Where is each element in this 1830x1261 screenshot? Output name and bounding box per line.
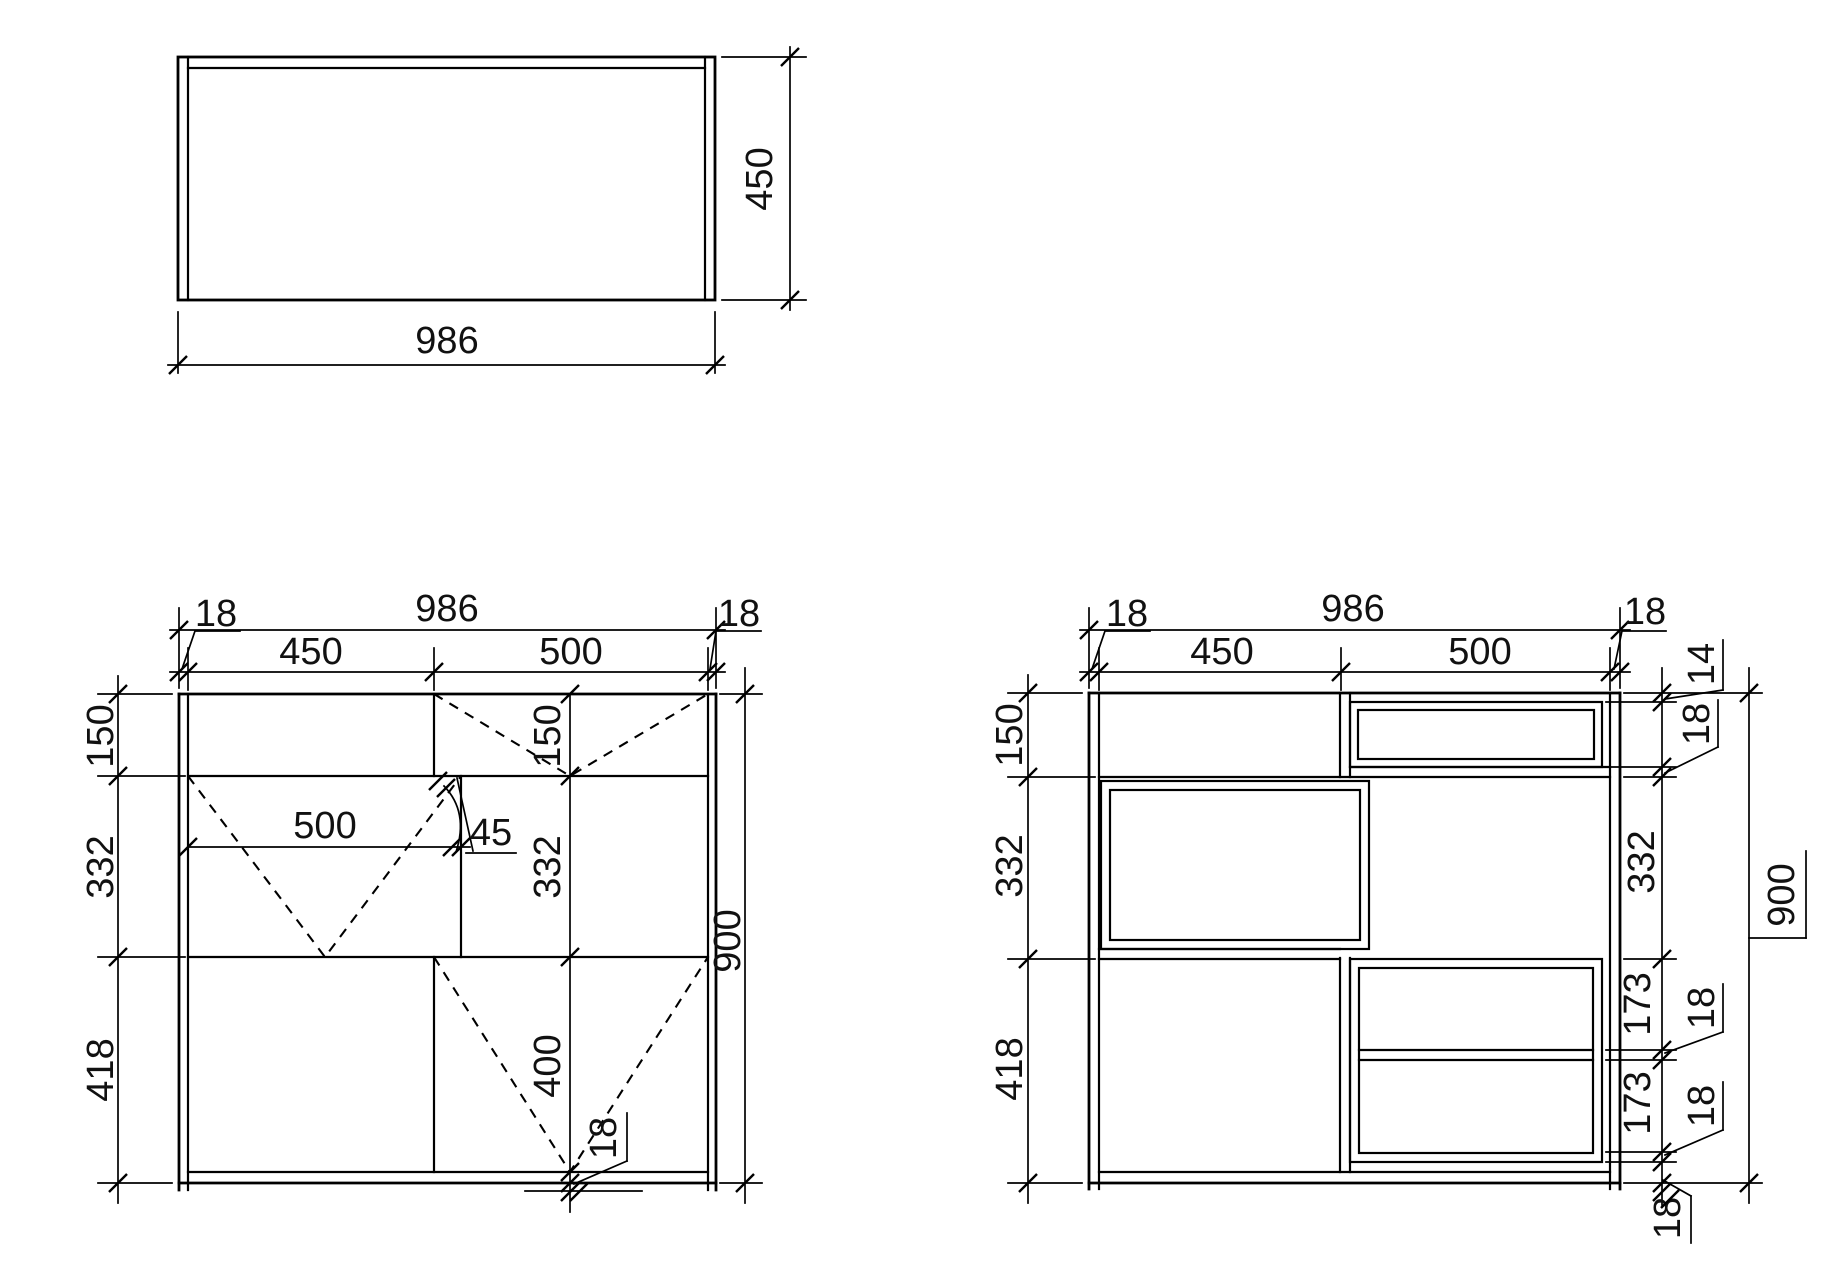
- front-view-internal-dimension-chain: 150 332 400 18: [525, 685, 642, 1212]
- section-top-gap-label: 14: [1681, 643, 1723, 685]
- front-bottom-panel-label: 18: [583, 1117, 625, 1159]
- front-right-panel-label: 18: [718, 593, 760, 635]
- front-left-opening-label: 450: [279, 631, 342, 673]
- section-left-panel-label: 18: [1106, 593, 1148, 635]
- section-view-top-dimensions: 986 450 500 18 18: [1080, 588, 1666, 690]
- section-middle-row-label: 332: [989, 834, 1031, 897]
- section-shelf-space-upper-label: 173: [1617, 972, 1659, 1035]
- front-flap-width-label: 500: [293, 805, 356, 847]
- section-view-right-dimension-chain: 14 18 332 173 18 173 18 18: [1606, 640, 1723, 1243]
- technical-drawing-page: 986 450: [0, 0, 1830, 1261]
- front-right-opening-label: 500: [539, 631, 602, 673]
- front-flap-detail-label: 45: [470, 812, 512, 854]
- front-view-left-dimension-chain: 150 332 418: [80, 676, 185, 1203]
- top-view-depth-label: 450: [739, 147, 781, 210]
- section-view-flap-panel: [1101, 781, 1369, 949]
- front-middle-row-label: 332: [80, 835, 122, 898]
- section-view-top-drawer-box: [1350, 702, 1602, 767]
- front-view: 986 450 500 18 18 150 332 418: [80, 588, 762, 1212]
- top-view: 986 450: [168, 47, 806, 374]
- top-view-carcass: [178, 57, 715, 300]
- front-view-top-dimensions: 986 450 500 18 18: [170, 588, 761, 690]
- top-view-depth-dimension: 450: [722, 47, 806, 310]
- front-overall-width-label: 986: [415, 588, 478, 630]
- front-view-flap-detail-callout: 45: [429, 772, 516, 854]
- section-left-opening-label: 450: [1190, 631, 1253, 673]
- front-left-panel-label: 18: [195, 593, 237, 635]
- section-shelf-lower-label: 18: [1681, 1085, 1723, 1127]
- front-view-carcass: [179, 694, 716, 1190]
- section-view: 986 450 500 18 18 150 332 418: [989, 588, 1806, 1243]
- front-overall-height-label: 900: [707, 909, 749, 972]
- front-inner-middle-row-label: 332: [527, 835, 569, 898]
- section-top-row-label: 150: [989, 703, 1031, 766]
- front-bottom-row-label: 418: [80, 1038, 122, 1101]
- section-right-opening-label: 500: [1448, 631, 1511, 673]
- front-top-row-label: 150: [80, 704, 122, 767]
- section-bottom-row-label: 418: [989, 1037, 1031, 1100]
- front-inner-top-row-label: 150: [527, 704, 569, 767]
- front-view-flap-width-dimension: 500: [179, 805, 470, 856]
- section-middle-opening-label: 332: [1621, 830, 1663, 893]
- front-door-height-label: 400: [527, 1034, 569, 1097]
- section-overall-height-label: 900: [1761, 863, 1803, 926]
- section-shelf-space-lower-label: 173: [1617, 1071, 1659, 1134]
- section-bottom-panel-label: 18: [1647, 1197, 1689, 1239]
- top-view-width-label: 986: [415, 320, 478, 362]
- section-drawer-shelf-label: 18: [1676, 703, 1718, 745]
- section-view-shelf-box: [1350, 959, 1602, 1162]
- section-view-left-dimension-chain: 150 332 418: [989, 675, 1095, 1203]
- furniture-drawing: 986 450: [0, 0, 1830, 1261]
- front-view-door-swing-lines: [188, 694, 708, 1172]
- section-right-panel-label: 18: [1624, 591, 1666, 633]
- top-view-width-dimension: 986: [168, 312, 725, 374]
- section-overall-width-label: 986: [1321, 588, 1384, 630]
- section-shelf-upper-label: 18: [1681, 987, 1723, 1029]
